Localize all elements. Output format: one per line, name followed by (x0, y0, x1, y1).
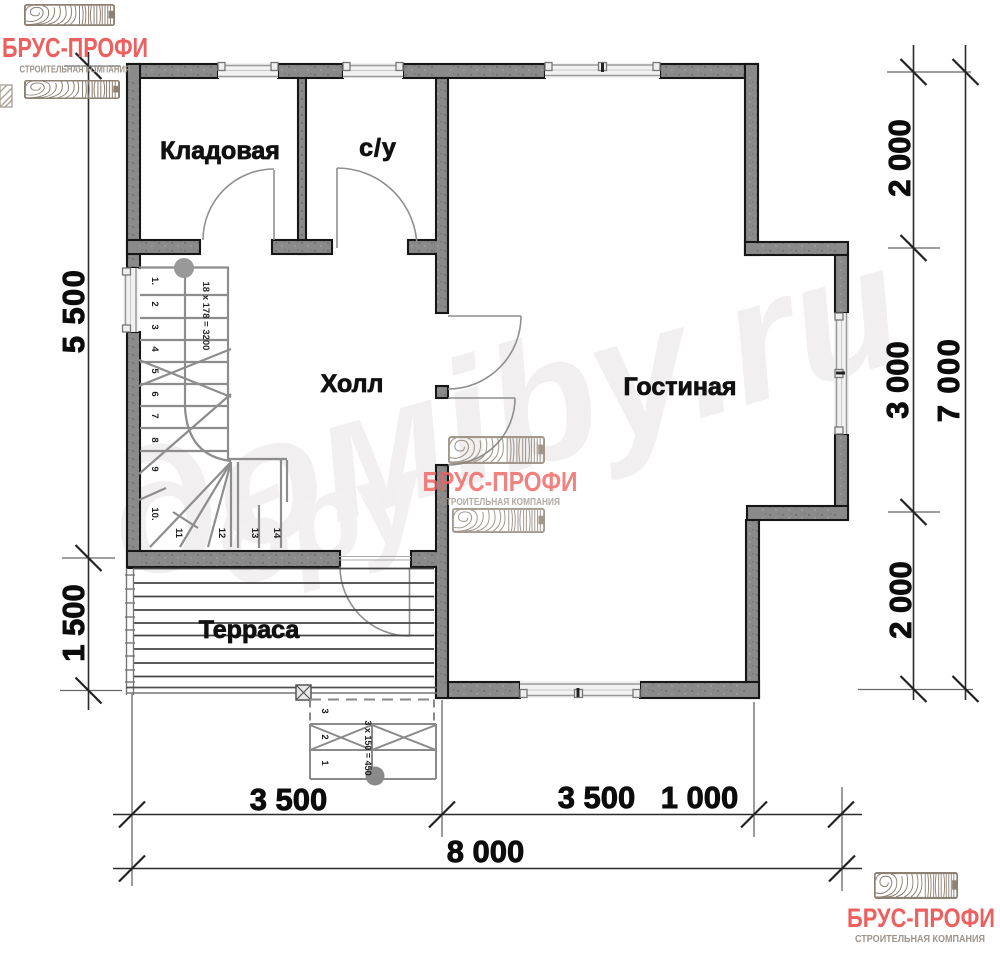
svg-text:1: 1 (319, 760, 330, 766)
svg-text:Холл: Холл (321, 370, 384, 398)
svg-text:3: 3 (319, 708, 330, 713)
svg-text:2: 2 (149, 301, 160, 306)
svg-text:СТРОИТЕЛЬНАЯ КОМПАНИЯ: СТРОИТЕЛЬНАЯ КОМПАНИЯ (440, 497, 560, 508)
svg-text:2 000: 2 000 (883, 561, 918, 639)
svg-text:3 500: 3 500 (250, 782, 328, 817)
svg-text:5: 5 (149, 368, 160, 374)
svg-text:Кладовая: Кладовая (160, 137, 280, 165)
svg-text:14: 14 (271, 528, 282, 539)
svg-text:6: 6 (149, 391, 160, 396)
svg-text:БРУС-ПРОФИ: БРУС-ПРОФИ (423, 466, 578, 497)
svg-text:5 500: 5 500 (56, 269, 91, 354)
svg-text:3 000: 3 000 (880, 341, 915, 419)
svg-text:2: 2 (319, 734, 330, 739)
svg-text:1 500: 1 500 (56, 584, 91, 662)
svg-text:2 000: 2 000 (882, 119, 917, 197)
svg-text:3 500: 3 500 (558, 780, 636, 815)
svg-text:7: 7 (149, 413, 160, 418)
svg-text:Гостиная: Гостиная (624, 373, 737, 401)
svg-text:9: 9 (149, 466, 160, 471)
svg-text:18 х 178 = 3200: 18 х 178 = 3200 (200, 282, 211, 351)
svg-text:СТРОИТЕЛЬНАЯ КОМПАНИЯ: СТРОИТЕЛЬНАЯ КОМПАНИЯ (855, 934, 985, 945)
svg-text:1.: 1. (149, 277, 160, 285)
svg-text:БРУС-ПРОФИ: БРУС-ПРОФИ (847, 903, 995, 933)
svg-text:11: 11 (173, 528, 184, 539)
svg-text:12: 12 (216, 528, 227, 539)
svg-text:8 000: 8 000 (447, 834, 525, 869)
svg-text:13: 13 (249, 528, 260, 539)
svg-text:1 000: 1 000 (661, 780, 739, 815)
svg-text:БРУС-ПРОФИ: БРУС-ПРОФИ (2, 32, 148, 63)
svg-text:7 000: 7 000 (931, 338, 966, 423)
svg-text:3 х 150 = 450: 3 х 150 = 450 (363, 720, 373, 775)
svg-text:10.: 10. (149, 507, 160, 520)
svg-text:с/у: с/у (359, 134, 397, 162)
svg-text:8: 8 (149, 437, 160, 442)
svg-text:Терраса: Терраса (199, 616, 301, 644)
svg-text:4: 4 (149, 346, 160, 352)
svg-text:СТРОИТЕЛЬНАЯ КОМПАНИЯ: СТРОИТЕЛЬНАЯ КОМПАНИЯ (20, 65, 131, 76)
svg-text:3: 3 (149, 324, 160, 329)
